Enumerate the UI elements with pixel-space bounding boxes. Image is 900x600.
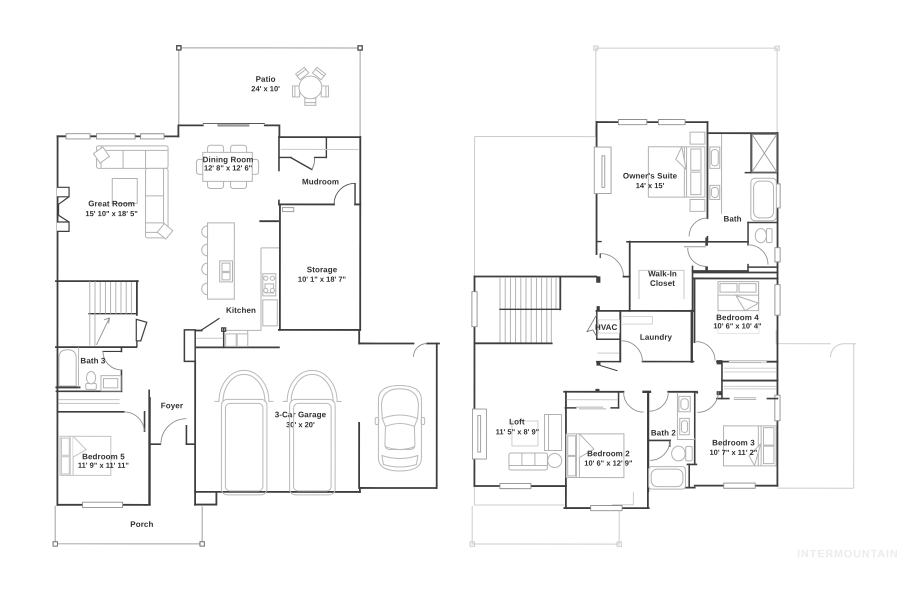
svg-text:Bath: Bath (723, 215, 741, 224)
svg-text:11' 9" x 11' 11": 11' 9" x 11' 11" (78, 461, 130, 470)
svg-text:Bath 2: Bath 2 (651, 429, 677, 438)
svg-text:15' 10" x 18' 5": 15' 10" x 18' 5" (85, 209, 138, 218)
svg-text:HVAC: HVAC (595, 323, 618, 332)
svg-text:11' 5" x 8' 9": 11' 5" x 8' 9" (496, 427, 540, 436)
svg-text:Loft: Loft (509, 417, 525, 426)
svg-text:Bath 3: Bath 3 (80, 356, 106, 365)
svg-text:Storage: Storage (307, 265, 338, 274)
svg-text:10' 6" x 10' 4": 10' 6" x 10' 4" (713, 321, 762, 330)
svg-text:Mudroom: Mudroom (302, 177, 339, 186)
svg-text:Closet: Closet (650, 279, 675, 288)
svg-text:Porch: Porch (130, 520, 153, 529)
svg-text:Kitchen: Kitchen (226, 306, 256, 315)
svg-text:10' 7" x 11' 2": 10' 7" x 11' 2" (710, 448, 758, 457)
svg-text:14' x 15': 14' x 15' (636, 181, 665, 190)
svg-text:12' 8" x 12' 6": 12' 8" x 12' 6" (204, 163, 253, 172)
svg-text:24' x 10': 24' x 10' (251, 84, 280, 93)
svg-text:Owner's Suite: Owner's Suite (623, 171, 678, 180)
svg-text:Foyer: Foyer (161, 401, 183, 410)
svg-text:10' 1" x 18' 7": 10' 1" x 18' 7" (298, 275, 347, 284)
svg-text:Great Room: Great Room (88, 199, 135, 208)
svg-text:Walk-In: Walk-In (648, 269, 677, 278)
svg-text:Bedroom 2: Bedroom 2 (587, 449, 630, 458)
svg-text:30' x 20': 30' x 20' (286, 420, 315, 429)
svg-text:10' 6" x 12' 9": 10' 6" x 12' 9" (584, 459, 633, 468)
svg-text:INTERMOUNTAIN: INTERMOUNTAIN (797, 548, 898, 560)
svg-text:Patio: Patio (256, 75, 276, 84)
svg-text:Bedroom 3: Bedroom 3 (712, 438, 755, 447)
svg-text:Laundry: Laundry (640, 333, 673, 342)
svg-text:3-Car Garage: 3-Car Garage (275, 410, 327, 419)
